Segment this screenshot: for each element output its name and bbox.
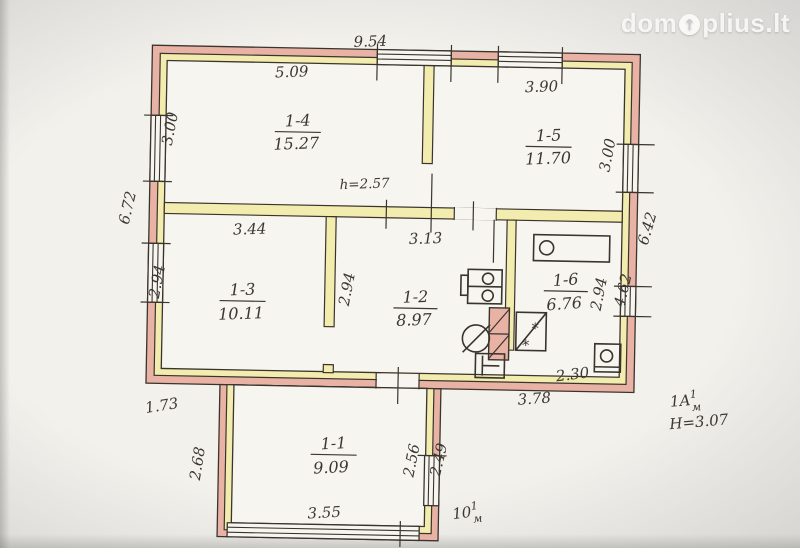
dim-annex-width: 3.55 (307, 503, 341, 523)
room-1-1-number: 1-1 (320, 433, 347, 453)
dim-annex-height-left: 2.68 (186, 446, 209, 483)
scale-note: 101м (451, 499, 483, 528)
window-right-room15 (623, 144, 639, 192)
building-note-sup: 1 (689, 388, 697, 402)
svg-text:*: * (531, 320, 539, 338)
room-1-3-number: 1-3 (229, 280, 255, 300)
arrow-up-circle-icon: ↑ (679, 14, 700, 35)
watermark-prefix: dom (621, 8, 677, 39)
ceiling-height-note: h=2.57 (339, 175, 390, 193)
room-1-5-number: 1-5 (535, 125, 561, 145)
room-1-6-number: 1-6 (552, 269, 579, 290)
watermark: dom ↑ plius.lt (621, 8, 790, 39)
room-1-2-number: 1-2 (402, 287, 428, 307)
floor-plan-drawing: * * (0, 0, 800, 548)
door-leaf (493, 220, 494, 263)
dim-left-outer: 6.72 (115, 189, 140, 226)
svg-text:*: * (522, 336, 530, 354)
scale-note-sub: м (472, 512, 483, 526)
scanned-floor-plan-photo: * * (0, 0, 800, 548)
partition-room14-room15 (422, 65, 434, 163)
room-1-3-area: 10.11 (218, 303, 264, 324)
partition-room13-room12 (324, 217, 336, 327)
partition-room13-room12-stub (323, 365, 333, 373)
room-1-4-area: 15.27 (273, 133, 320, 154)
building-note: 1A1м (669, 387, 702, 416)
floor-plan: * * (109, 27, 737, 548)
dim-room15-width: 3.90 (524, 77, 558, 96)
dim-room12-width: 3.13 (409, 229, 443, 248)
dim-bottom-right: 3.78 (517, 389, 552, 409)
scale-note-sup: 1 (470, 499, 479, 513)
dim-room13-width: 3.44 (233, 220, 267, 239)
dim-room14-width: 5.09 (275, 62, 309, 81)
dim-bottom-left: 1.73 (144, 394, 180, 417)
chimney-symbol (488, 308, 509, 360)
room-1-2-area: 8.97 (396, 310, 433, 330)
building-height-note: H=3.07 (668, 410, 730, 433)
room-1-1-area: 9.09 (313, 457, 350, 478)
building-note-main: 1A (669, 391, 691, 411)
window-top-room15 (498, 52, 562, 68)
dim-top-overall: 9.54 (353, 32, 387, 51)
window-top-room14 (377, 50, 451, 66)
room-1-5-area: 11.70 (525, 148, 571, 169)
room-1-4-number: 1-4 (285, 111, 311, 131)
window-annex-bottom (227, 523, 419, 541)
watermark-suffix: plius.lt (702, 8, 790, 39)
arrow-up-glyph: ↑ (683, 16, 696, 34)
room-1-6-area: 6.76 (546, 293, 583, 314)
